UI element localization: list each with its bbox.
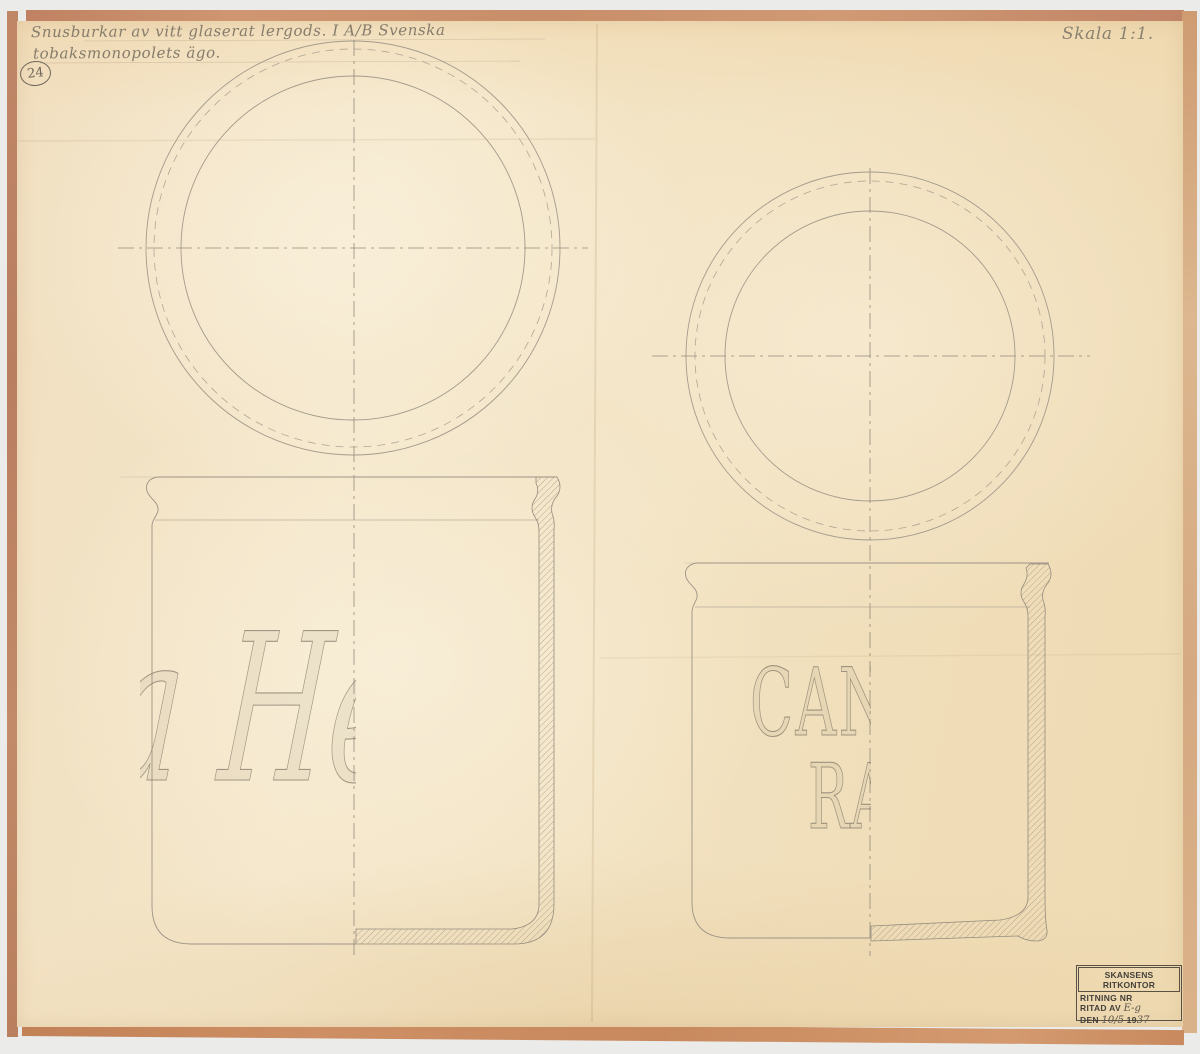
title-block: SKANSENS RITKONTOR RITNING NR RITAD AV E… <box>1076 965 1182 1021</box>
drawn-by-label: RITAD AV <box>1080 1003 1121 1013</box>
scale-note: Skala 1:1. <box>1062 24 1154 44</box>
scanned-drawing-sheet: Snusburkar av vitt glaserat lergods. I A… <box>0 0 1200 1054</box>
sheet-annotation-line2: tobaksmonopolets ägo. <box>33 44 221 63</box>
title-block-date: DEN 10/5 1937 <box>1077 1015 1181 1027</box>
right-jar-lettering-line1: CANZ <box>750 655 871 758</box>
date-year-prefix: 19 <box>1127 1015 1137 1025</box>
date-label: DEN <box>1080 1015 1099 1025</box>
drawing-paper <box>17 21 1183 1027</box>
drawn-by-value: E-g <box>1124 1003 1141 1014</box>
date-day: 10/5 <box>1102 1015 1124 1026</box>
date-year-suffix: 37 <box>1137 1015 1150 1026</box>
title-block-office: SKANSENS RITKONTOR <box>1078 967 1180 992</box>
title-block-drawing-no: RITNING NR <box>1077 993 1181 1004</box>
right-jar-lettering-line2: RA <box>808 745 871 845</box>
sheet-annotation-line1: Snusburkar av vitt glaserat lergods. I A… <box>31 21 446 41</box>
title-block-drawn-by: RITAD AV E-g <box>1077 1003 1181 1015</box>
right-jar-lettering-clip: CANZ RA <box>700 655 871 845</box>
mount-frame-right <box>1182 11 1197 1033</box>
left-jar-lettering: a Hellg <box>140 591 356 820</box>
left-jar-lettering-clip: a Hellg <box>140 565 356 820</box>
